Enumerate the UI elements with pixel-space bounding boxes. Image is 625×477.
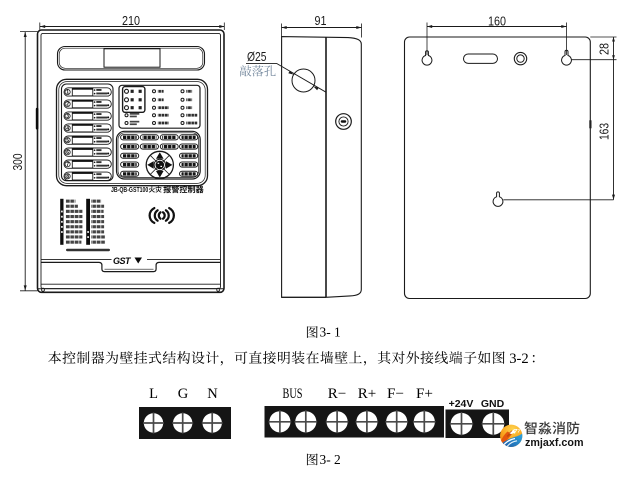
svg-text:3: 3 (66, 114, 69, 120)
svg-text:6: 6 (66, 150, 69, 156)
svg-text:BUS: BUS (283, 386, 303, 402)
svg-text:zmjaxf.com: zmjaxf.com (525, 437, 584, 449)
svg-text:GST: GST (113, 256, 132, 266)
svg-text:G: G (178, 386, 189, 402)
svg-text:JB-QB-GST100: JB-QB-GST100 (111, 185, 148, 194)
svg-text:F+: F+ (416, 386, 433, 402)
svg-text:4: 4 (66, 126, 69, 132)
svg-text:28: 28 (597, 43, 612, 55)
svg-text:5: 5 (66, 138, 69, 144)
svg-text:GND: GND (481, 398, 505, 410)
svg-text:7: 7 (66, 162, 69, 168)
svg-text:L: L (149, 386, 158, 402)
svg-text:R+: R+ (358, 386, 377, 402)
svg-text:8: 8 (66, 174, 69, 180)
svg-text:3- 1: 3- 1 (320, 325, 341, 340)
svg-text:91: 91 (315, 13, 327, 28)
svg-text:210: 210 (122, 13, 140, 28)
svg-text:R−: R− (328, 386, 347, 402)
svg-text:2: 2 (66, 102, 69, 108)
svg-text:+24V: +24V (449, 398, 474, 410)
svg-text:3-2: 3-2 (509, 351, 528, 367)
svg-text:N: N (207, 386, 218, 402)
svg-text:1: 1 (66, 90, 69, 96)
svg-text:163: 163 (597, 123, 612, 140)
svg-text:F−: F− (387, 386, 404, 402)
svg-text:Ø25: Ø25 (247, 50, 267, 64)
svg-text:3- 2: 3- 2 (320, 452, 341, 467)
svg-text:300: 300 (10, 154, 25, 171)
